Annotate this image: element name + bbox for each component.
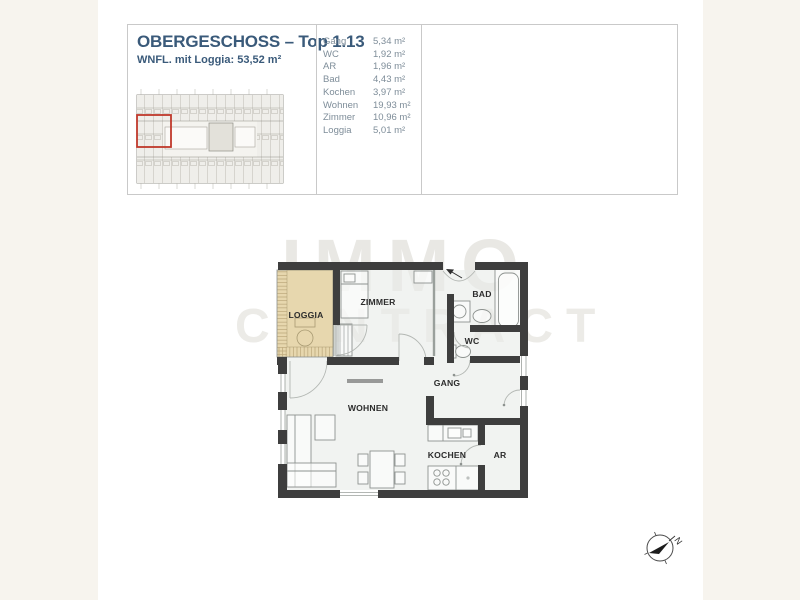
info-panel: OBERGESCHOSS – Top 1.13 WNFL. mit Loggia…: [127, 24, 678, 195]
table-row: Loggia5,01 m²: [317, 125, 421, 138]
room-name: AR: [317, 61, 373, 74]
room-name: Bad: [317, 74, 373, 87]
table-row: WC1,92 m²: [317, 49, 421, 62]
watermark-line1: IMMO: [235, 233, 577, 299]
page-subtitle: WNFL. mit Loggia: 53,52 m²: [137, 54, 281, 66]
watermark-line2: CONTRACT: [235, 299, 578, 355]
room-area: 1,92 m²: [373, 49, 405, 62]
room-name: Wohnen: [317, 100, 373, 113]
room-name: Zimmer: [317, 112, 373, 125]
room-name: WC: [317, 49, 373, 62]
table-row: Kochen3,97 m²: [317, 87, 421, 100]
room-area: 5,34 m²: [373, 36, 405, 49]
table-row: Zimmer10,96 m²: [317, 112, 421, 125]
room-area: 1,96 m²: [373, 61, 405, 74]
room-area: 3,97 m²: [373, 87, 405, 100]
panel-divider: [421, 25, 422, 194]
table-row: AR1,96 m²: [317, 61, 421, 74]
room-area: 10,96 m²: [373, 112, 411, 125]
site-plan-minimap: [135, 89, 287, 191]
room-area: 19,93 m²: [373, 100, 411, 113]
floorplan-sheet: IMMO CONTRACT OBERGESCHOSS – Top 1.13 WN…: [0, 0, 800, 600]
table-row: Wohnen19,93 m²: [317, 100, 421, 113]
table-row: Gang5,34 m²: [317, 36, 421, 49]
room-name: Gang: [317, 36, 373, 49]
room-area: 5,01 m²: [373, 125, 405, 138]
room-name: Loggia: [317, 125, 373, 138]
room-area: 4,43 m²: [373, 74, 405, 87]
room-table: Gang5,34 m²WC1,92 m²AR1,96 m²Bad4,43 m²K…: [317, 36, 421, 138]
building-outline: [137, 89, 283, 189]
room-name: Kochen: [317, 87, 373, 100]
table-row: Bad4,43 m²: [317, 74, 421, 87]
watermark: IMMO CONTRACT: [235, 233, 565, 355]
